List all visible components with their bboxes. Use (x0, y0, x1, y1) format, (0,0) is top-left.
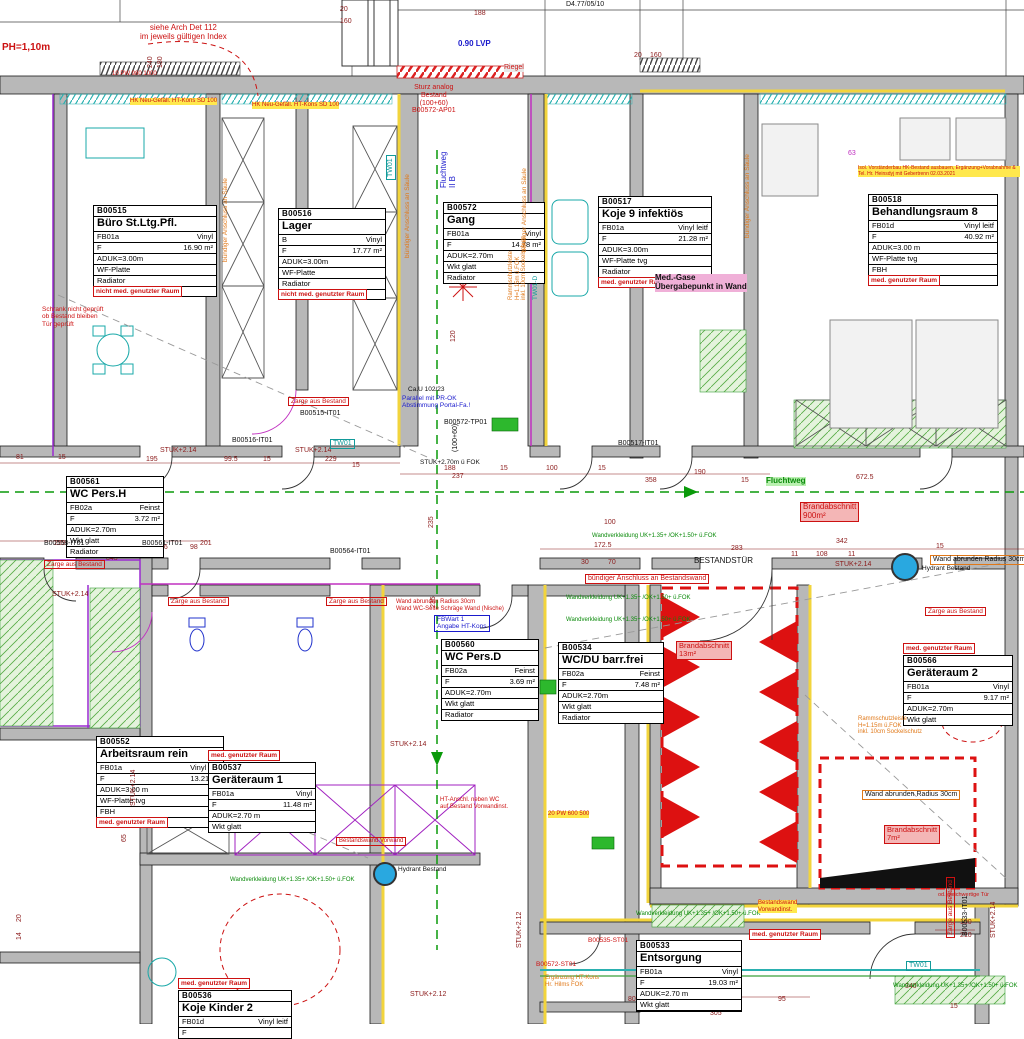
stuk-label: STUK+2.14 (130, 770, 138, 806)
existing-wall-note: Bestandswand Vorwand (336, 837, 406, 846)
room-attribute-row: ADUK=2.70m (904, 704, 1012, 715)
cladding-note: Wandverkleidung UK+1.35+ /OK+1.50+ ü.FOK (592, 533, 717, 540)
attribute-key: FB01a (100, 764, 122, 772)
room-attribute-row: FB01dVinyl leitf (869, 221, 997, 232)
attribute-key: FB01d (872, 222, 894, 230)
flush-column-note: bündiger Anschluss an Säule (404, 174, 411, 258)
room-name: Geräteraum 1 (209, 774, 315, 789)
attribute-value: 9.17 m² (984, 694, 1009, 702)
med-gas-note: Med.-Gase Übergabepunkt in Wand (655, 274, 747, 292)
attribute-key: FB01a (97, 233, 119, 241)
drawing-date: D4.77/05/10 (566, 1, 604, 9)
room-attribute-row: F3.72 m² (67, 514, 163, 525)
room-usage-note: med. genutzter Raum (96, 817, 168, 828)
attribute-key: F (100, 775, 105, 783)
attribute-key: Radiator (447, 274, 475, 282)
room-attribute-row: ADUK=3.00 m (97, 785, 223, 796)
detail-ref-note: siehe Arch Det 112 im jeweils gültigen I… (140, 24, 227, 42)
dimension-label: 120 (450, 330, 457, 342)
attribute-value: Vinyl (722, 968, 738, 976)
room-attribute-row: F11.48 m² (209, 800, 315, 811)
room-attribute-row: F16.90 m² (94, 243, 216, 254)
dimension-label: 70 (608, 559, 616, 566)
room-name: Gang (444, 214, 544, 229)
cladding-note: Wandverkleidung UK+1.35+ /OK+1.50+ ü.FOK (636, 911, 761, 918)
room-attribute-row: WF-Platte (279, 268, 385, 279)
room-id: B00536 (179, 991, 291, 1002)
dimension-label: 283 (731, 545, 743, 552)
dimension-label: 11 (848, 551, 855, 558)
wc-note: HT-Anschl. neben WC auf Bestand Vorwandi… (440, 797, 508, 810)
pw-note: 10 PW 980 1000 (112, 71, 157, 78)
cladding-note: Wandverkleidung UK+1.35+ /OK+1.50+ ü.FOK (230, 877, 355, 884)
attribute-value: Feinst (515, 667, 535, 675)
frame-note: Zarge aus Bestand (326, 597, 387, 606)
dimension-label: 15 (263, 456, 271, 463)
dimension-label: 15 (500, 465, 508, 472)
attribute-value: 7.48 m² (635, 681, 660, 689)
attribute-key: FBH (872, 266, 887, 274)
attribute-key: F (182, 1029, 187, 1037)
attribute-key: F (447, 241, 452, 249)
attribute-key: Wkt glatt (562, 703, 591, 711)
stuk-label: STUK+2.14 (835, 561, 871, 569)
attribute-key: Radiator (282, 280, 310, 288)
dimension-label: 180 (157, 56, 164, 68)
room-attribute-row: FB01aVinyl leitf (599, 223, 711, 234)
room-usage-note: med. genutzter Raum (868, 275, 940, 286)
frame-note: Zarge aus Bestand (168, 597, 229, 606)
attribute-key: B (282, 236, 287, 244)
room-attribute-row: ADUK=3.00m (94, 254, 216, 265)
room-attribute-row: F14.78 m² (444, 240, 544, 251)
attribute-key: Radiator (97, 277, 125, 285)
frame-note: Zarge aus Bestand (946, 877, 955, 938)
dimension-label: 235 (428, 516, 435, 528)
room-attribute-row: ADUK=2.70 m (209, 811, 315, 822)
stuk-label: STUK+2.70m ü FOK (420, 459, 480, 466)
tp-ref: B00572-TP01 (444, 419, 487, 427)
stuk-label: STUK+2.12 (516, 912, 524, 948)
room-attribute-row: Radiator (444, 273, 544, 283)
room-usage-note: nicht med. genutzter Raum (278, 289, 367, 300)
round-wall-note: Wand abrunden Radius 30cm (862, 790, 960, 800)
niche-note: Wand abrunden Radius 30cm Wand WC-Seite … (396, 599, 504, 612)
dimension-label: 195 (146, 456, 158, 463)
dimension-label: 65 (121, 834, 128, 842)
attribute-value: 3.72 m² (135, 515, 160, 523)
attribute-key: Radiator (70, 548, 98, 556)
attribute-key: ADUK=2.70 m (212, 812, 260, 820)
room-id: B00533 (637, 941, 741, 952)
portal-note-2: Parallel mit PR-OK Abstimmung Portal-Fa.… (402, 395, 470, 410)
room-attribute-row: FB01aVinyl (904, 682, 1012, 693)
room-name: Entsorgung (637, 952, 741, 967)
pw-note: 20 PW 600 500 (548, 811, 589, 818)
room-usage-note: med. genutzter Raum (903, 643, 975, 654)
attribute-value: Vinyl (197, 233, 213, 241)
annotation-overlay: B00515Büro St.Ltg.Pfl.FB01aVinylF16.90 m… (0, 0, 1024, 1024)
dimension-label: 108 (816, 551, 828, 558)
room-name: Büro St.Ltg.Pfl. (94, 217, 216, 232)
attribute-value: Feinst (140, 504, 160, 512)
attribute-key: F (872, 233, 877, 241)
room-attribute-row: Radiator (67, 547, 163, 557)
hydrant-label: Hydrant Bestand (398, 866, 446, 873)
attribute-value: 21.28 m² (678, 235, 708, 243)
flush-column-note: bündiger Anschluss an Säule (744, 154, 751, 238)
attribute-key: FB01a (907, 683, 929, 691)
room-id: B00518 (869, 195, 997, 206)
attribute-key: F (907, 694, 912, 702)
parapet-height-label: PH=1,10m (2, 42, 50, 53)
dimension-label: 81 (16, 454, 24, 461)
dimension-label: 672.5 (856, 474, 874, 481)
room-name: WC Pers.D (442, 651, 538, 666)
attribute-key: Wkt glatt (447, 263, 476, 271)
dimension-label: 15 (950, 1003, 958, 1010)
room-attribute-row: Wkt glatt (442, 699, 538, 710)
room-attribute-row: F7.48 m² (559, 680, 663, 691)
room-box-B00534: B00534WC/DU barr.freiFB02aFeinstF7.48 m²… (558, 642, 664, 724)
room-attribute-row: FB01dVinyl leitf (179, 1017, 291, 1028)
attribute-key: FB01a (602, 224, 624, 232)
attribute-key: FBH (100, 808, 115, 816)
room-attribute-row: Wkt glatt (209, 822, 315, 832)
attribute-value: 3.69 m² (510, 678, 535, 686)
riegel-label: Riegel (504, 64, 524, 72)
room-name: Lager (279, 220, 385, 235)
dimension-label: 20 (16, 914, 23, 922)
attribute-key: F (445, 678, 450, 686)
dimension-label: 358 (645, 477, 657, 484)
room-attribute-row: F21.28 m² (599, 234, 711, 245)
room-attribute-row: ADUK=2.70 m (637, 989, 741, 1000)
stuk-label: STUK+2.12 (410, 991, 446, 999)
attribute-key: ADUK=2.70 m (640, 990, 688, 998)
room-attribute-row: ADUK=2.70m (559, 691, 663, 702)
cladding-note: Wandverkleidung UK+1.35+ /OK+1.50+ ü.FOK (893, 983, 1018, 990)
attribute-key: Radiator (445, 711, 473, 719)
attribute-key: Wkt glatt (445, 700, 474, 708)
room-box-B00533: B00533EntsorgungFB01aVinylF19.03 m²ADUK=… (636, 940, 742, 1012)
room-id: B00517 (599, 197, 711, 208)
flush-column-note: bündiger Anschluss an Säule (222, 178, 229, 262)
dimension-label: 20 (634, 52, 642, 59)
dimension-label: 15 (58, 454, 66, 461)
attribute-key: FB01a (212, 790, 234, 798)
stuk-label: STUK+2.14 (295, 447, 331, 455)
stuk-label: STUK+2.14 (390, 741, 426, 749)
room-attribute-row: FB01aVinyl leitf (97, 763, 223, 774)
ht-kons-note: FBWart 1 Angabe HT-Kons (434, 615, 490, 632)
attribute-key: FB02a (562, 670, 584, 678)
attribute-key: F (602, 235, 607, 243)
room-box-B00516: B00516LagerBVinylF17.77 m²ADUK=3.00mWF-P… (278, 208, 386, 300)
attribute-key: FB01a (640, 968, 662, 976)
st-ref: B00535-ST01 (588, 937, 628, 944)
room-attribute-row: ADUK=3.00m (599, 245, 711, 256)
attribute-key: FB01a (447, 230, 469, 238)
room-attribute-row: WF-Platte tvg (599, 256, 711, 267)
dimension-label: 172.5 (594, 542, 612, 549)
attribute-key: F (640, 979, 645, 987)
attribute-key: ADUK=3.00 m (100, 786, 148, 794)
room-attribute-row: WF-Platte tvg (869, 254, 997, 265)
room-attribute-row: ADUK=3.00 m (869, 243, 997, 254)
dimension-label: 11 (791, 551, 798, 558)
dimension-label: 30 (581, 559, 589, 566)
attribute-key: FB01d (182, 1018, 204, 1026)
room-attribute-row: Wkt glatt (559, 702, 663, 713)
dim-magenta: 63 (848, 150, 856, 158)
dimension-label: 20 (340, 6, 348, 13)
attribute-key: F (562, 681, 567, 689)
room-box-B00537: med. genutzter RaumB00537Geräteraum 1FB0… (208, 762, 316, 833)
dimension-label: 15 (352, 462, 360, 469)
attribute-key: F (70, 515, 75, 523)
room-attribute-row: F9.17 m² (904, 693, 1012, 704)
dimension-label: 98 (190, 544, 198, 551)
room-id: B00552 (97, 737, 223, 748)
room-usage-note: nicht med. genutzter Raum (93, 286, 182, 297)
door-note: od. gleichwertige Tür (938, 892, 989, 898)
room-attribute-row: F40.92 m² (869, 232, 997, 243)
room-attribute-row: FB01aVinyl (637, 967, 741, 978)
stuk-label: STUK+2.14 (52, 591, 88, 599)
room-attribute-row: ADUK=2.70m (67, 525, 163, 536)
attribute-value: Feinst (640, 670, 660, 678)
dimension-label: 188 (474, 10, 486, 17)
room-box-B00518: B00518Behandlungsraum 8FB01dVinyl leitfF… (868, 194, 998, 286)
ram-protection-note: Rammschutzleiste H=1.15m ü.FOK inkl. 10c… (508, 236, 528, 300)
attribute-key: Wkt glatt (640, 1001, 669, 1009)
attribute-key: FB02a (445, 667, 467, 675)
attribute-key: ADUK=3.00m (282, 258, 328, 266)
attribute-key: WF-Platte tvg (872, 255, 917, 263)
attribute-key: Radiator (602, 268, 630, 276)
hk-note: HK Neu-Gefäll. HT-Kons SD 100 (130, 98, 217, 105)
room-id: B00516 (279, 209, 385, 220)
door-ref: B00515-IT01 (300, 410, 340, 418)
room-attribute-row: WF-Platte (94, 265, 216, 276)
attribute-value: Vinyl leitf (964, 222, 994, 230)
fire-compartment-label: Brandabschnitt 900m² (800, 502, 859, 522)
room-box-B00536: med. genutzter RaumB00536Koje Kinder 2FB… (178, 990, 292, 1039)
dimension-label: 99.5 (224, 456, 238, 463)
attribute-value: Vinyl leitf (258, 1018, 288, 1026)
room-name: WC Pers.H (67, 488, 163, 503)
room-name: Geräteraum 2 (904, 667, 1012, 682)
existing-door-label: BESTANDSTÜR (694, 557, 753, 566)
attribute-key: F (97, 244, 102, 252)
dimension-label: 229 (325, 456, 337, 463)
attribute-key: ADUK=3.00m (602, 246, 648, 254)
cladding-note: Wandverkleidung UK+1.35+ /OK+1.50+ ü.FOK (566, 617, 691, 624)
room-id: B00561 (67, 477, 163, 488)
dimension-label: 14 (16, 932, 23, 940)
dimension-label: 15 (741, 477, 749, 484)
attribute-key: F (282, 247, 287, 255)
dimension-label: 201 (200, 540, 212, 547)
wall-type-tag: TW01-D (532, 276, 539, 300)
attribute-key: WF-Platte tvg (100, 797, 145, 805)
fire-compartment-label: Brandabschnitt 7m² (884, 825, 940, 844)
room-id: B00566 (904, 656, 1012, 667)
escape-route-vertical-label: Fluchtweg II B (440, 152, 458, 188)
attribute-key: FB02a (70, 504, 92, 512)
fire-compartment-label: Brandabschnitt 13m² (676, 641, 732, 660)
hydrant-label: Hydrant Bestand (922, 565, 970, 572)
dimension-label: 80 (628, 996, 636, 1003)
room-attribute-row: WF-Platte tvg (97, 796, 223, 807)
dimension-label: 15 (936, 543, 944, 550)
attribute-key: Wkt glatt (212, 823, 241, 831)
cladding-note: Wandverkleidung UK+1.35+ /OK+1.50+ ü.FOK (566, 595, 691, 602)
lintel-dim: (100+60) (452, 424, 460, 452)
room-id: B00537 (209, 763, 315, 774)
round-wall-note: Wand abrunden Radius 30cm (930, 555, 1024, 565)
dimension-label: 100 (604, 519, 616, 526)
existing-wall-note: Bestandswand Vorwandinst. (758, 900, 797, 913)
room-name: Behandlungsraum 8 (869, 206, 997, 221)
dimension-label: 95 (778, 996, 786, 1003)
room-usage-note: med. genutzter Raum (208, 750, 280, 761)
room-name: Koje Kinder 2 (179, 1002, 291, 1017)
dimension-label: 237 (452, 473, 464, 480)
cabinet-note: Schrank nicht geprüft ob Bestand bleiben… (42, 306, 103, 328)
room-attribute-row: Wkt glatt (444, 262, 544, 273)
room-attribute-row: BVinyl (279, 235, 385, 246)
wall-type-tag: TW01 (386, 155, 396, 180)
ht-kons-note: Ergänzung HT-Kons Hr. Hilms FOK (545, 975, 599, 988)
attribute-key: ADUK=2.70m (907, 705, 953, 713)
attribute-value: Vinyl (296, 790, 312, 798)
attribute-key: WF-Platte tvg (602, 257, 647, 265)
attribute-key: ADUK=3.00 m (872, 244, 920, 252)
lintel-note: Sturz analog Bestand (100+60) B00572-AP0… (412, 84, 456, 115)
room-attribute-row: FB01aVinyl (209, 789, 315, 800)
room-name: Koje 9 infektiös (599, 208, 711, 223)
room-attribute-row: Radiator (559, 713, 663, 723)
attribute-value: 40.92 m² (964, 233, 994, 241)
attribute-key: F (212, 801, 217, 809)
room-attribute-row: ADUK=3.00m (279, 257, 385, 268)
escape-route-label: Fluchtweg (766, 477, 806, 486)
door-ref: B00561-IT01 (142, 540, 182, 548)
hk-note: HK Neu-Gefäll. HT-Kons SD 100 (252, 102, 339, 109)
room-attribute-row: F3.69 m² (442, 677, 538, 688)
room-attribute-row: ADUK=2.70m (444, 251, 544, 262)
door-ref: B00517-IT01 (618, 440, 658, 448)
room-name: Arbeitsraum rein (97, 748, 223, 763)
attribute-value: 17.77 m² (352, 247, 382, 255)
st-ref: B00572-ST01 (536, 961, 576, 968)
room-attribute-row: F19.03 m² (637, 978, 741, 989)
room-id: B00515 (94, 206, 216, 217)
attribute-value: Vinyl leitf (678, 224, 708, 232)
room-attribute-row: FB02aFeinst (559, 669, 663, 680)
room-box-B00515: B00515Büro St.Ltg.Pfl.FB01aVinylF16.90 m… (93, 205, 217, 297)
room-box-B00552: B00552Arbeitsraum reinFB01aVinyl leitfF1… (96, 736, 224, 828)
room-attribute-row: FB01aVinyl (444, 229, 544, 240)
portal-note: Ca.U 102/23 (408, 386, 445, 393)
room-attribute-row: Radiator (442, 710, 538, 720)
room-attribute-row: FB02aFeinst (67, 503, 163, 514)
door-ref: B00564-IT01 (330, 548, 370, 556)
wall-type-tag: TW01 (330, 439, 355, 449)
room-attribute-row: F17.77 m² (279, 246, 385, 257)
attribute-key: ADUK=2.70m (70, 526, 116, 534)
room-attribute-row: FB02aFeinst (442, 666, 538, 677)
room-id: B00572 (444, 203, 544, 214)
dimension-label: 100 (546, 465, 558, 472)
room-usage-note: med. genutzter Raum (178, 978, 250, 989)
attribute-value: 16.90 m² (183, 244, 213, 252)
flush-wall-note: bündiger Anschluss an Bestandswand (585, 574, 709, 584)
attribute-key: ADUK=2.70m (445, 689, 491, 697)
attribute-key: ADUK=3.00m (97, 255, 143, 263)
room-usage-note: med. genutzter Raum (749, 929, 821, 940)
isol-note: Isol. Vorständerbau HK-Bestand ausbauen,… (858, 166, 1020, 177)
attribute-key: WF-Platte (97, 266, 130, 274)
lvp-label: 0.90 LVP (458, 40, 491, 49)
room-attribute-row: FB01aVinyl (94, 232, 216, 243)
attribute-key: Radiator (562, 714, 590, 722)
attribute-key: WF-Platte (282, 269, 315, 277)
attribute-value: Vinyl (366, 236, 382, 244)
room-attribute-row: Wkt glatt (637, 1000, 741, 1011)
room-box-B00572: B00572GangFB01aVinylF14.78 m²ADUK=2.70mW… (443, 202, 545, 284)
room-id: B00560 (442, 640, 538, 651)
room-attribute-row: ADUK=2.70m (442, 688, 538, 699)
dimension-label: 15 (598, 465, 606, 472)
dimension-label: 160 (340, 18, 352, 25)
frame-note: Zarge aus Bestand (925, 607, 986, 616)
dimension-label: 342 (836, 538, 848, 545)
frame-note: Zarge aus Bestand (288, 397, 349, 406)
attribute-value: Vinyl (993, 683, 1009, 691)
attribute-key: ADUK=2.70m (562, 692, 608, 700)
room-name: WC/DU barr.frei (559, 654, 663, 669)
attribute-key: ADUK=2.70m (447, 252, 493, 260)
room-box-B00560: B00560WC Pers.DFB02aFeinstF3.69 m²ADUK=2… (441, 639, 539, 721)
attribute-value: 11.48 m² (283, 801, 312, 809)
ram-protection-note: Rammschutzleiste H=1.15m ü.FOK inkl. 10c… (858, 716, 922, 736)
room-attribute-row: F (179, 1028, 291, 1038)
door-ref: B00533-IT01 (962, 896, 970, 936)
stuk-label: STUK+2.14 (160, 447, 196, 455)
dimension-label: 240 (147, 56, 154, 68)
dimension-label: 160 (650, 52, 662, 59)
stuk-label: STUK+2.14 (990, 902, 998, 938)
door-ref: B00516-IT01 (232, 437, 272, 445)
attribute-value: 19.03 m² (708, 979, 738, 987)
wall-type-tag: TW01 (906, 961, 931, 971)
frame-note: Zarge aus Bestand (44, 560, 105, 569)
dimension-label: 190 (694, 469, 706, 476)
room-attribute-row: F13.21 m² (97, 774, 223, 785)
room-id: B00534 (559, 643, 663, 654)
door-ref: B00558-IT01 (44, 540, 84, 548)
